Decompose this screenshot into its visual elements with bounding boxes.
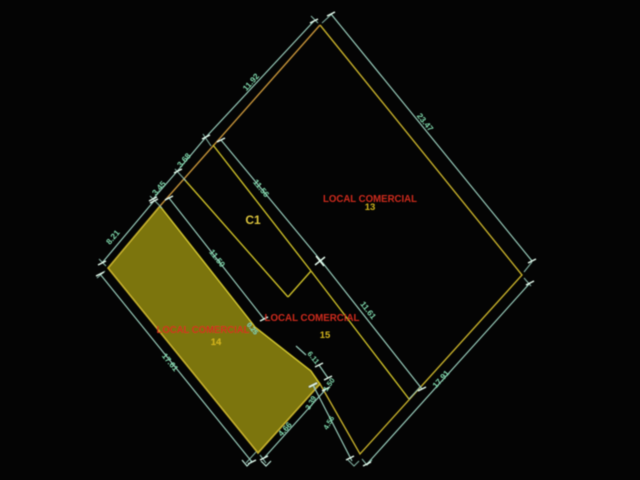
svg-text:13: 13	[365, 202, 376, 213]
svg-text:11.61: 11.61	[358, 300, 378, 322]
svg-text:8.21: 8.21	[105, 228, 122, 246]
svg-text:3.68: 3.68	[175, 151, 193, 169]
svg-text:6.11: 6.11	[305, 349, 321, 365]
svg-text:3.45: 3.45	[150, 179, 168, 197]
svg-text:LOCAL COMERCIAL: LOCAL COMERCIAL	[265, 312, 361, 324]
svg-text:11.50: 11.50	[207, 248, 227, 270]
svg-text:LOCAL COMERCIAL: LOCAL COMERCIAL	[157, 324, 251, 336]
svg-text:11.92: 11.92	[241, 72, 261, 93]
svg-text:C1: C1	[245, 213, 261, 227]
svg-text:14: 14	[211, 337, 222, 348]
svg-text:15: 15	[320, 330, 331, 341]
svg-text:1.50: 1.50	[321, 376, 337, 393]
svg-text:4.56: 4.56	[321, 414, 336, 431]
